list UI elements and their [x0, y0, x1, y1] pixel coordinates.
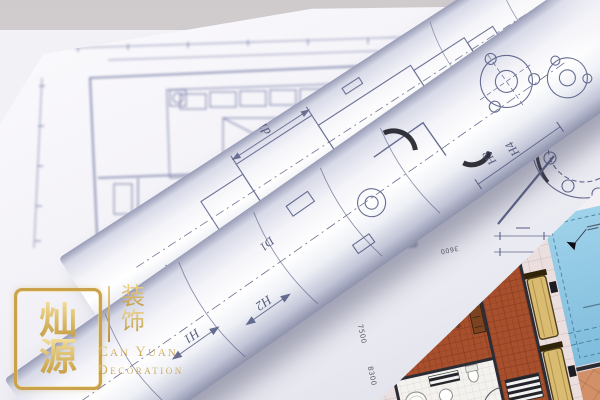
seal-icon: 灿 源: [14, 288, 102, 390]
roll-label-H3: H3: [479, 148, 499, 169]
watermark-side-chars: 装 饰: [116, 284, 150, 334]
brand-name: Can Yuan: [98, 344, 178, 361]
photo-blueprints-scene: L L1: [0, 0, 600, 400]
brand-subtitle: Decoration: [98, 362, 184, 378]
roll-label-H2: H2: [253, 292, 276, 314]
roll-label-D1: D1: [257, 233, 278, 254]
side-char-top: 装: [121, 284, 145, 309]
seal-char-bottom: 源: [39, 339, 77, 376]
roll-label-H4: H4: [502, 139, 522, 160]
watermark-logo: 灿 源 装 饰 Can Yuan Decoration: [8, 282, 208, 394]
side-char-bottom: 饰: [121, 309, 145, 334]
seal-char-top: 灿: [39, 302, 77, 339]
watermark-divider: [108, 286, 110, 342]
